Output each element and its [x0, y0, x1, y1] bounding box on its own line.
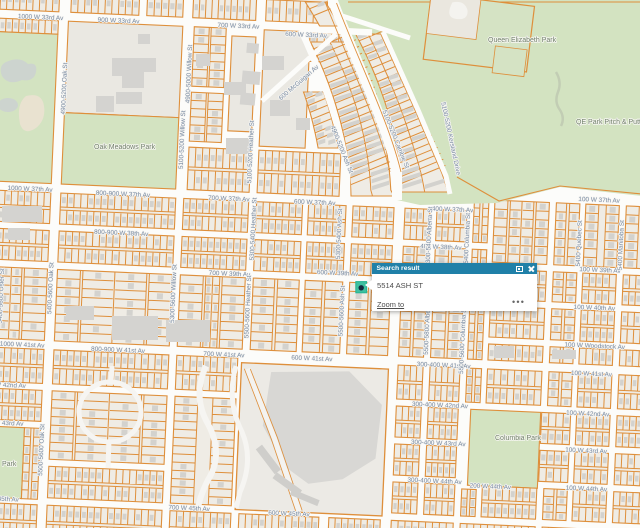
- svg-text:W 42nd Av: W 42nd Av: [0, 382, 27, 390]
- svg-text:QE Park Pitch & Putt: QE Park Pitch & Putt: [576, 119, 640, 126]
- svg-text:W 45th Av: W 45th Av: [0, 495, 20, 503]
- svg-text:Park: Park: [2, 461, 17, 468]
- svg-text:W 43rd Av: W 43rd Av: [0, 420, 24, 428]
- svg-text:Columbia Park: Columbia Park: [495, 435, 541, 442]
- svg-text:Oak Meadows Park: Oak Meadows Park: [94, 144, 156, 151]
- svg-text:Queen Elizabeth Park: Queen Elizabeth Park: [488, 37, 557, 44]
